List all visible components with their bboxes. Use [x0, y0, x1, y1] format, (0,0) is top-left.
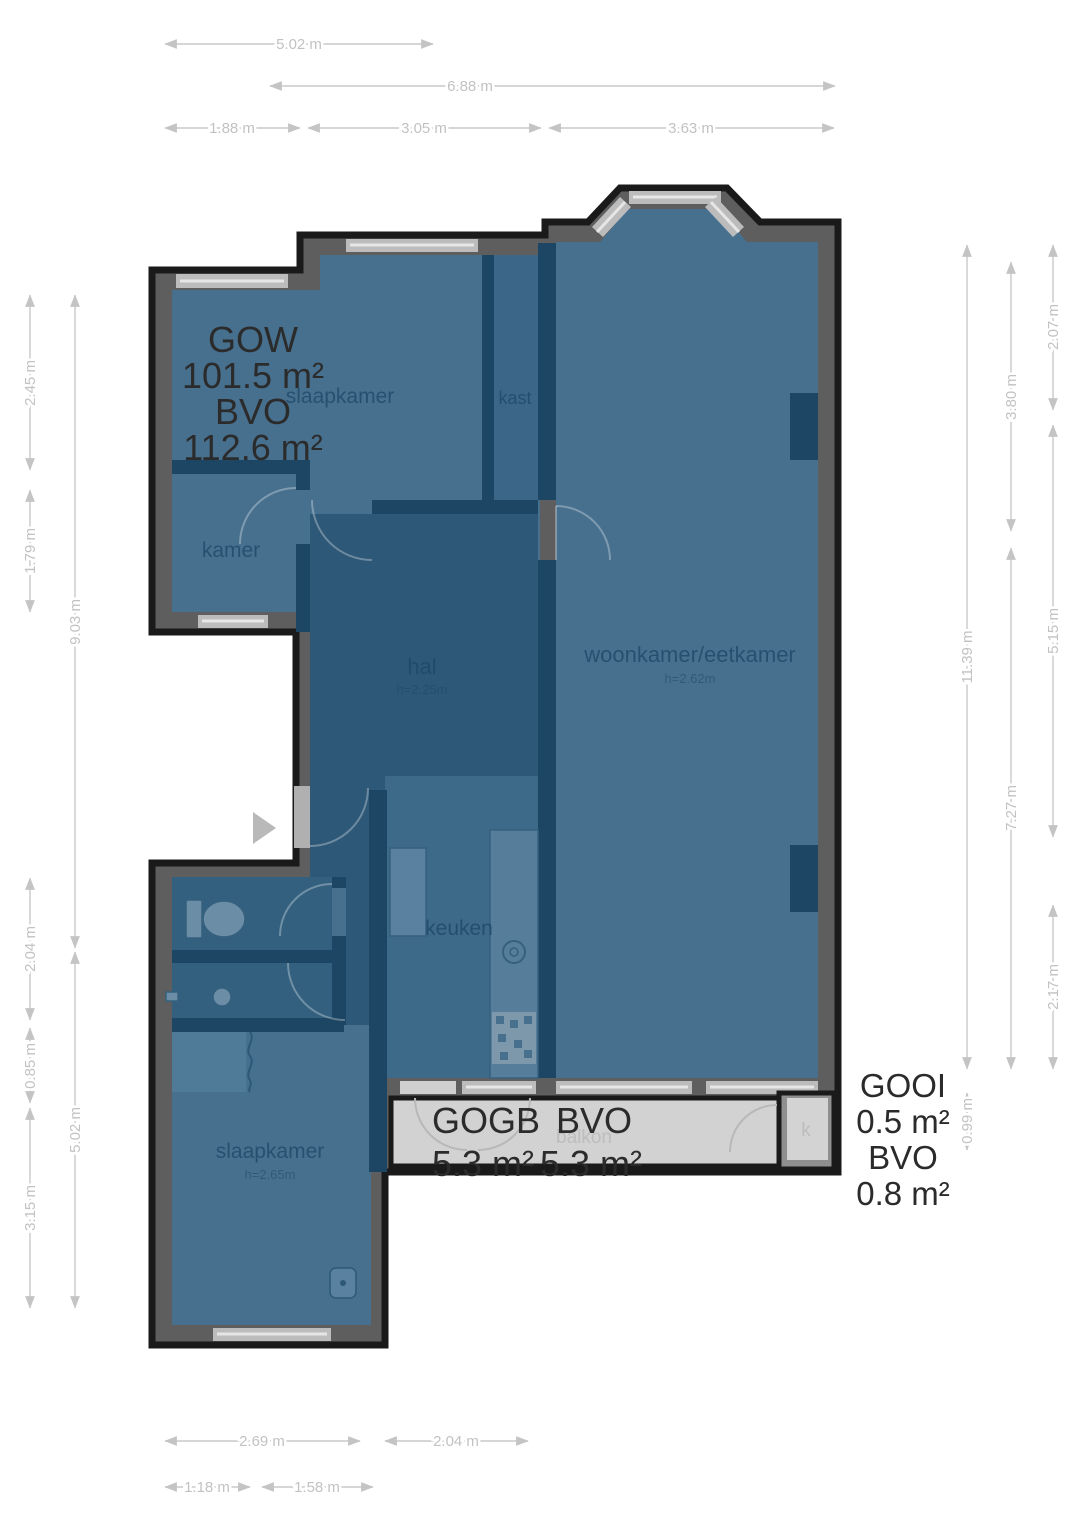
- dimension-label: 1.79 m: [22, 528, 39, 574]
- dimension-label: 9.03 m: [67, 599, 84, 645]
- dimension-label: 2.07 m: [1045, 304, 1062, 350]
- wall-segment: [332, 877, 346, 888]
- room-kast-floor: [494, 255, 538, 500]
- room-label-keuken: keuken: [425, 917, 493, 940]
- room-label-kamer: kamer: [202, 539, 260, 562]
- dimension-label: 5.02 m: [67, 1107, 84, 1153]
- area-value: 112.6 m²: [183, 427, 322, 468]
- wall-segment: [538, 243, 556, 500]
- room-label-berging: k: [801, 1120, 811, 1141]
- kitchen-cabinet: [390, 848, 426, 936]
- radiator-icon: [330, 1268, 356, 1298]
- wall-segment: [482, 255, 494, 500]
- wall-niche: [790, 845, 818, 912]
- front-door-opening: [294, 786, 310, 848]
- dimension-label: 5.02 m: [276, 36, 322, 53]
- floor-plan-page: 5.02 m 6.88 m 1.88 m 3.05 m 3.63 m 2.45 …: [0, 0, 1080, 1527]
- area-summary-gooi: GOOI 0.5 m² BVO 0.8 m²: [856, 1067, 950, 1212]
- wall-segment: [372, 500, 538, 514]
- dimension-label: 1.88 m: [209, 120, 255, 137]
- dimension-label: 2.04 m: [22, 926, 39, 972]
- room-label-slaapkamer-bottom: slaapkamer: [216, 1140, 325, 1163]
- dimension-label: 3.80 m: [1003, 374, 1020, 420]
- dimension-label: 1.58 m: [294, 1479, 340, 1496]
- wall-segment: [332, 936, 346, 1025]
- area-value: 5.3 m²: [540, 1143, 642, 1184]
- dimension-label: 2.69 m: [239, 1433, 285, 1450]
- wall-segment: [369, 790, 387, 1172]
- dimension-label: 5.15 m: [1045, 608, 1062, 654]
- dimension-label: 7.27 m: [1003, 785, 1020, 831]
- room-height-woonkamer: h=2.62m: [665, 671, 716, 686]
- area-value: 0.8 m²: [856, 1175, 950, 1212]
- toilet-icon: [186, 900, 245, 938]
- area-label: GOW: [208, 319, 298, 360]
- balcony-door: [400, 1081, 456, 1094]
- stove-icon: [492, 1012, 536, 1064]
- area-label: GOOI: [860, 1067, 946, 1104]
- wall-niche: [790, 393, 818, 460]
- room-height-hal: h=2.25m: [397, 682, 448, 697]
- wall-segment: [296, 544, 310, 632]
- wall-segment: [172, 1018, 344, 1032]
- area-value: 5.3 m²: [432, 1143, 534, 1184]
- dimension-label: 2.45 m: [22, 360, 39, 406]
- area-label: BVO: [868, 1139, 938, 1176]
- dimensions-top: 5.02 m 6.88 m 1.88 m 3.05 m 3.63 m: [165, 36, 835, 137]
- area-label: BVO: [215, 391, 291, 432]
- dimension-label: 2.17 m: [1045, 964, 1062, 1010]
- dimensions-right: 2.07 m 3.80 m 11.39 m 5.15 m 7.27 m 2.17…: [959, 245, 1062, 1150]
- dimensions-bottom: 2.69 m 2.04 m 1.18 m 1.58 m: [165, 1433, 528, 1496]
- dimension-label: 0.99 m: [959, 1098, 976, 1144]
- area-label: GOGB: [432, 1100, 540, 1141]
- room-bathroom-floor: [172, 877, 332, 1018]
- area-label: BVO: [556, 1100, 632, 1141]
- dimension-label: 1.18 m: [184, 1479, 230, 1496]
- floor-plan-drawing: 5.02 m 6.88 m 1.88 m 3.05 m 3.63 m 2.45 …: [0, 0, 1080, 1527]
- entrance-arrow-icon: [253, 812, 276, 844]
- wall-segment: [538, 560, 556, 1078]
- dimension-label: 11.39 m: [959, 630, 976, 683]
- dimensions-left: 2.45 m 1.79 m 9.03 m 2.04 m 0.85 m 5.02 …: [22, 295, 84, 1308]
- room-label-hal: hal: [407, 654, 436, 679]
- room-label-woonkamer: woonkamer/eetkamer: [583, 642, 796, 667]
- room-height-slaapkamer-bottom: h=2.65m: [245, 1167, 296, 1182]
- area-value: 101.5 m²: [182, 355, 324, 396]
- dimension-label: 0.85 m: [22, 1043, 39, 1089]
- wall-segment: [172, 950, 332, 963]
- dimension-label: 3.63 m: [668, 120, 714, 137]
- area-value: 0.5 m²: [856, 1103, 950, 1140]
- dimension-label: 3.05 m: [401, 120, 447, 137]
- room-label-kast: kast: [498, 388, 531, 408]
- dimension-label: 2.04 m: [433, 1433, 479, 1450]
- dimension-label: 3.15 m: [22, 1185, 39, 1231]
- dimension-label: 6.88 m: [447, 78, 493, 95]
- shower-area: [172, 1032, 246, 1092]
